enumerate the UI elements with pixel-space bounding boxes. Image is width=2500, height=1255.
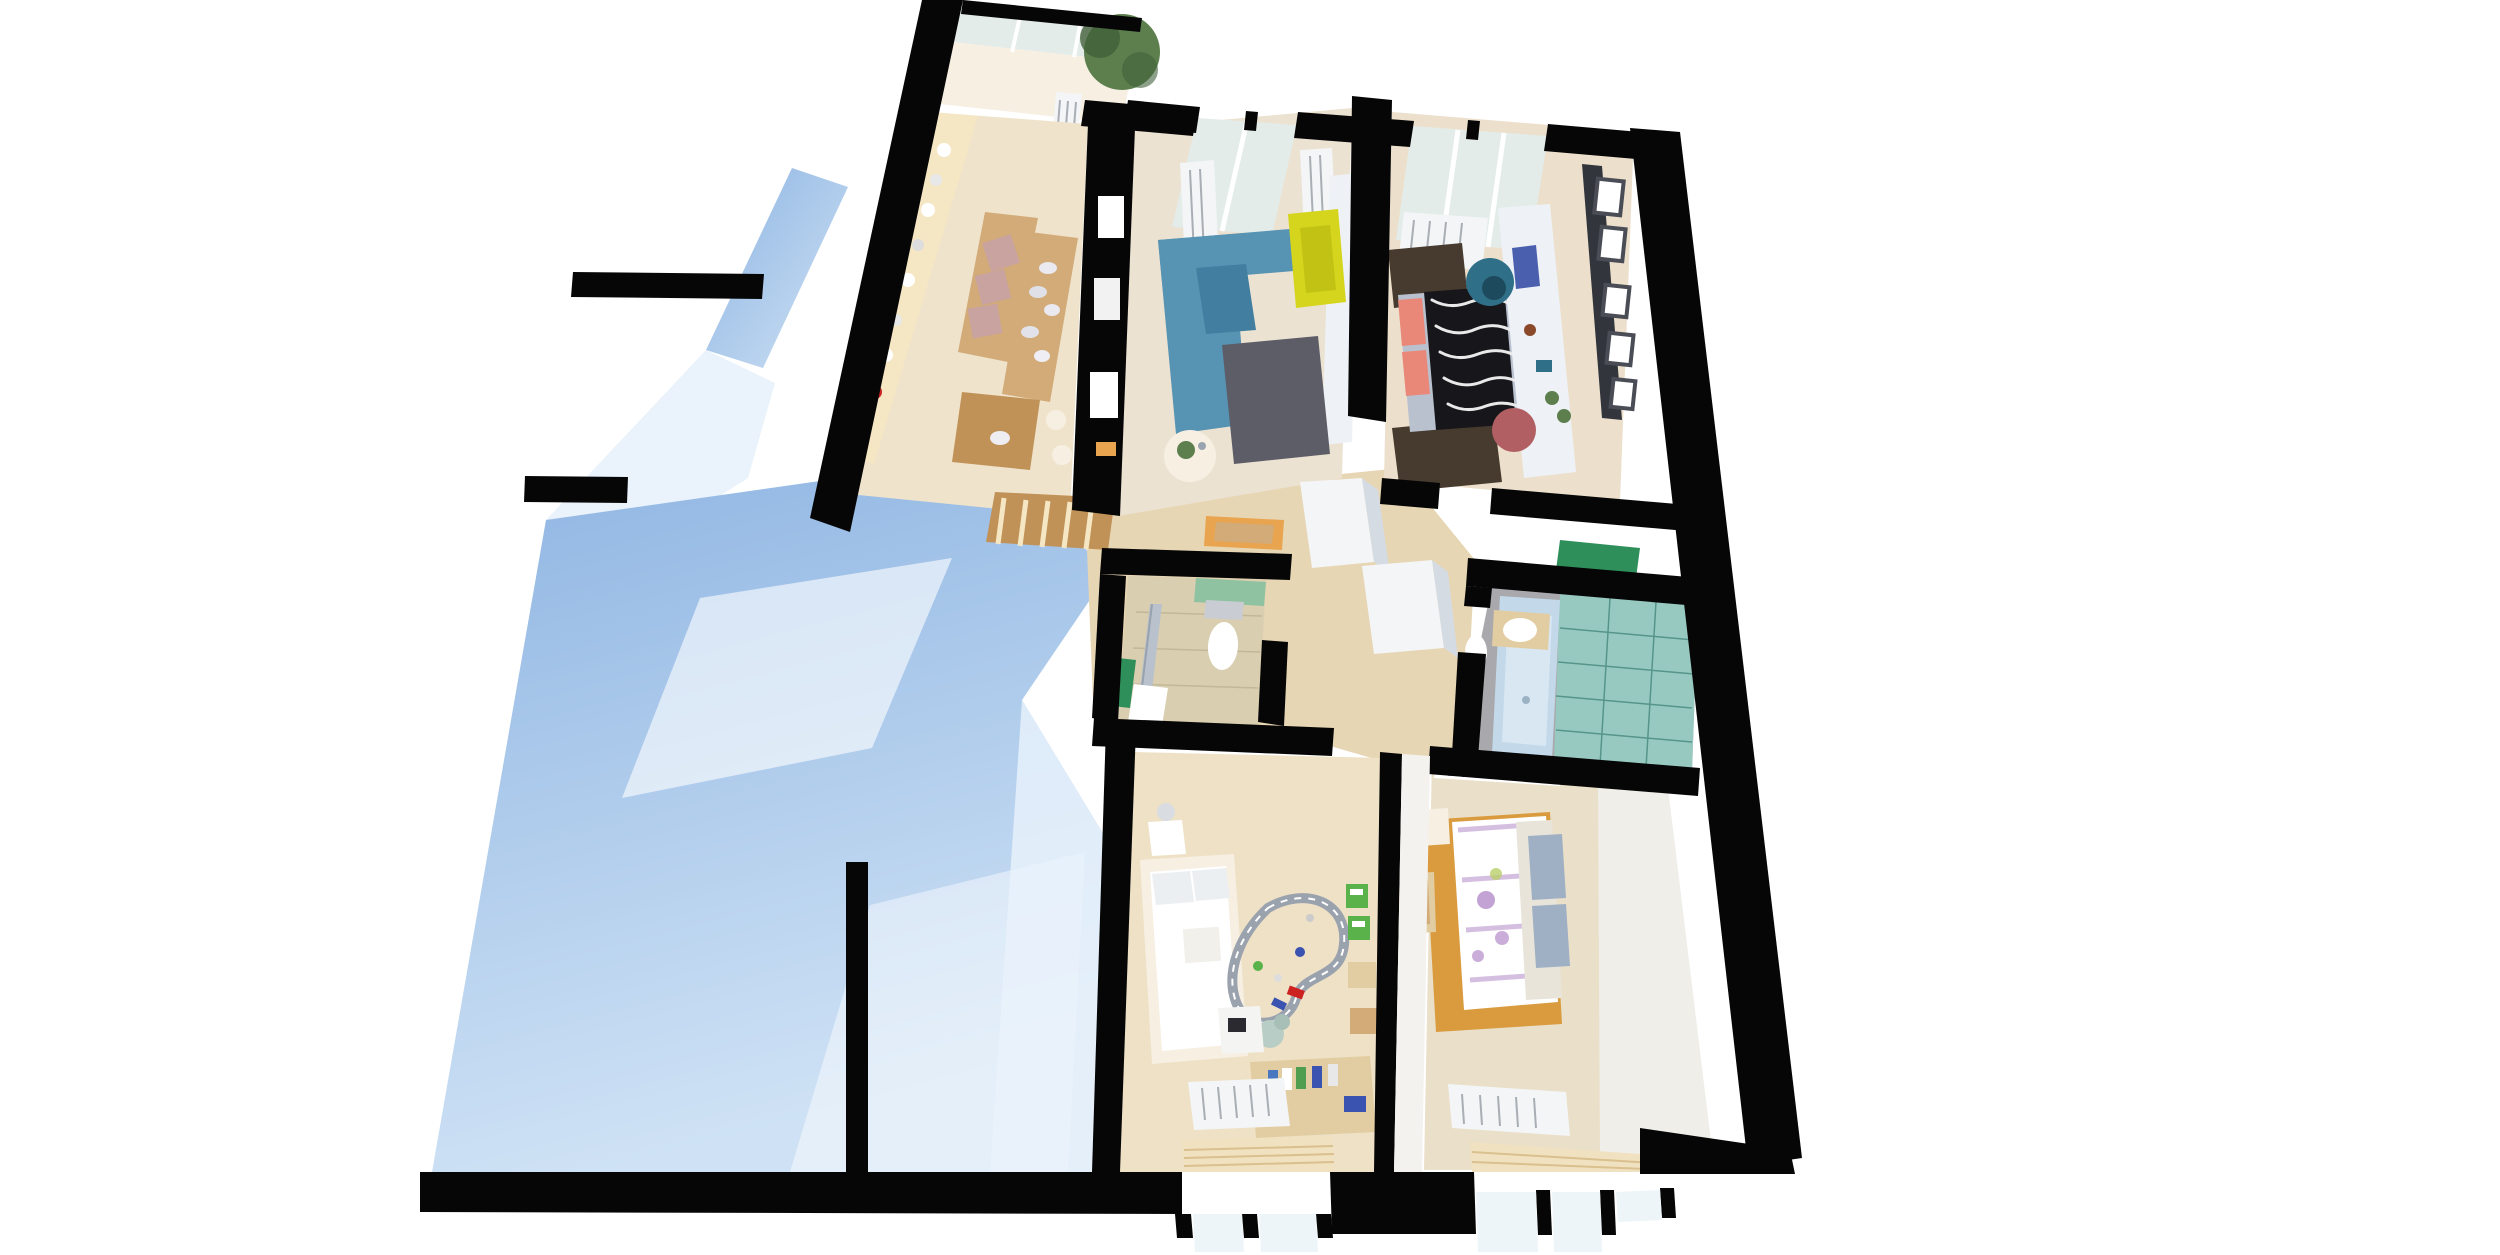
bedroom-top [1384,112,1635,502]
teddy-bear-head [1274,1014,1290,1030]
desk-typewriter [1536,360,1552,372]
hall-wardrobe-1 [1300,478,1374,568]
bottom-window-pier [1175,1214,1193,1238]
table-plate [1044,304,1060,316]
wood-crate [1350,1008,1378,1034]
kids-blanket-pillow [1183,927,1221,963]
bottom-radiator [1448,1084,1570,1136]
wc [1112,576,1266,726]
floral-motif [1472,950,1484,962]
toy [1306,914,1314,922]
kitchen-stool [1052,445,1072,465]
kitchen-dish [937,143,951,157]
desk-chair [1492,408,1536,452]
floorplan-render [0,0,2500,1255]
bottom-window-glass [1259,1214,1318,1252]
kitchen-dish [912,239,924,251]
toilet-tank [1204,600,1244,620]
bathroom-sink [1503,618,1537,642]
kids-pillow [1192,868,1230,901]
toy [1295,947,1305,957]
toy-blocks [1348,916,1370,940]
bottom-wall-center [1330,1172,1476,1234]
bottom-window-pier [1536,1190,1552,1235]
coral-pillow [1402,350,1430,396]
table-plate [1034,350,1050,362]
left-wall-stub-upper [571,272,764,299]
toy [1274,974,1282,982]
floral-motif [1495,931,1509,945]
toy-block-face [1352,921,1365,927]
picture-frame [1611,379,1636,409]
book [1312,1066,1322,1088]
egg-chair-seat [1482,276,1506,300]
toy-block-face [1350,889,1363,895]
balcony-tree-shade [1122,52,1158,88]
sofa-chaise [1196,264,1256,334]
window-pier [1466,120,1480,140]
table-plate [1039,262,1057,274]
book [1328,1064,1338,1086]
kitchen-dish [921,203,935,217]
kids-lamp [1157,803,1175,821]
shelf-niche [1090,372,1118,418]
bottom-window-pier [1242,1214,1259,1238]
wood-crate [1348,962,1376,988]
left-wall-stub-lower [524,476,628,503]
wall-living-bedroom [1348,96,1392,422]
kids-nightstand [1148,820,1186,856]
picture-frame [1602,285,1629,317]
desk-monitor [1512,245,1540,289]
bottom-wall-left [420,1172,1182,1214]
living-room [1118,108,1360,516]
bedroom-bottom [1398,752,1714,1172]
picture-frame [1606,333,1633,365]
kids-room [1112,752,1384,1172]
hall-wardrobe-2 [1362,560,1444,654]
wall-bedroom-hall-left [1380,478,1440,509]
side-table-bottle [1198,442,1206,450]
desk-plant [1545,391,1559,405]
bottom-window-pier [1316,1214,1333,1238]
armchair-seat [1300,225,1336,293]
bathroom-wall-left-upper [1464,586,1492,608]
living-rug [1222,336,1330,464]
bathroom-teal-wall [1554,592,1698,772]
coral-pillow [1398,298,1426,346]
shelf-box-orange [1096,442,1116,456]
bottom-window-glass [1193,1214,1244,1252]
toy-box [1344,1096,1366,1112]
table-plate [1021,326,1039,338]
shelf-niche [1098,196,1124,238]
shelf-niche [1094,278,1120,320]
side-table-plant [1177,441,1195,459]
kids-pillow [1152,871,1194,905]
cabinet-dish [990,431,1010,445]
kitchen-cabinet [952,392,1040,470]
floral-leaf [1490,868,1502,880]
book [1296,1067,1306,1089]
desk-cup [1524,324,1536,336]
bottom-window-glass [1616,1190,1662,1222]
bottom-window-glass [1476,1192,1538,1252]
window-pier [1244,111,1258,131]
kids-table-screen [1228,1018,1246,1032]
bathtub-drain [1522,696,1530,704]
picture-frame [1594,179,1623,216]
bottom-window-pier [1660,1188,1676,1218]
exterior-wall-vertical [846,862,868,1172]
desk-plant [1557,409,1571,423]
kitchen-stool [1046,410,1066,430]
hall-nook-floor [1214,522,1274,544]
picture-frame [1598,227,1625,261]
table-plate [1029,286,1047,298]
gray-pillow [1528,834,1566,900]
bottom-window-glass [1552,1192,1602,1252]
toy [1253,961,1263,971]
bottom-window-pier [1600,1190,1616,1235]
wc-wall-right [1258,640,1288,726]
bench-cushion [968,304,1003,339]
toy-blocks [1346,884,1368,908]
floral-motif [1477,891,1495,909]
gray-pillow [1532,904,1570,968]
kitchen-dish [930,174,942,186]
